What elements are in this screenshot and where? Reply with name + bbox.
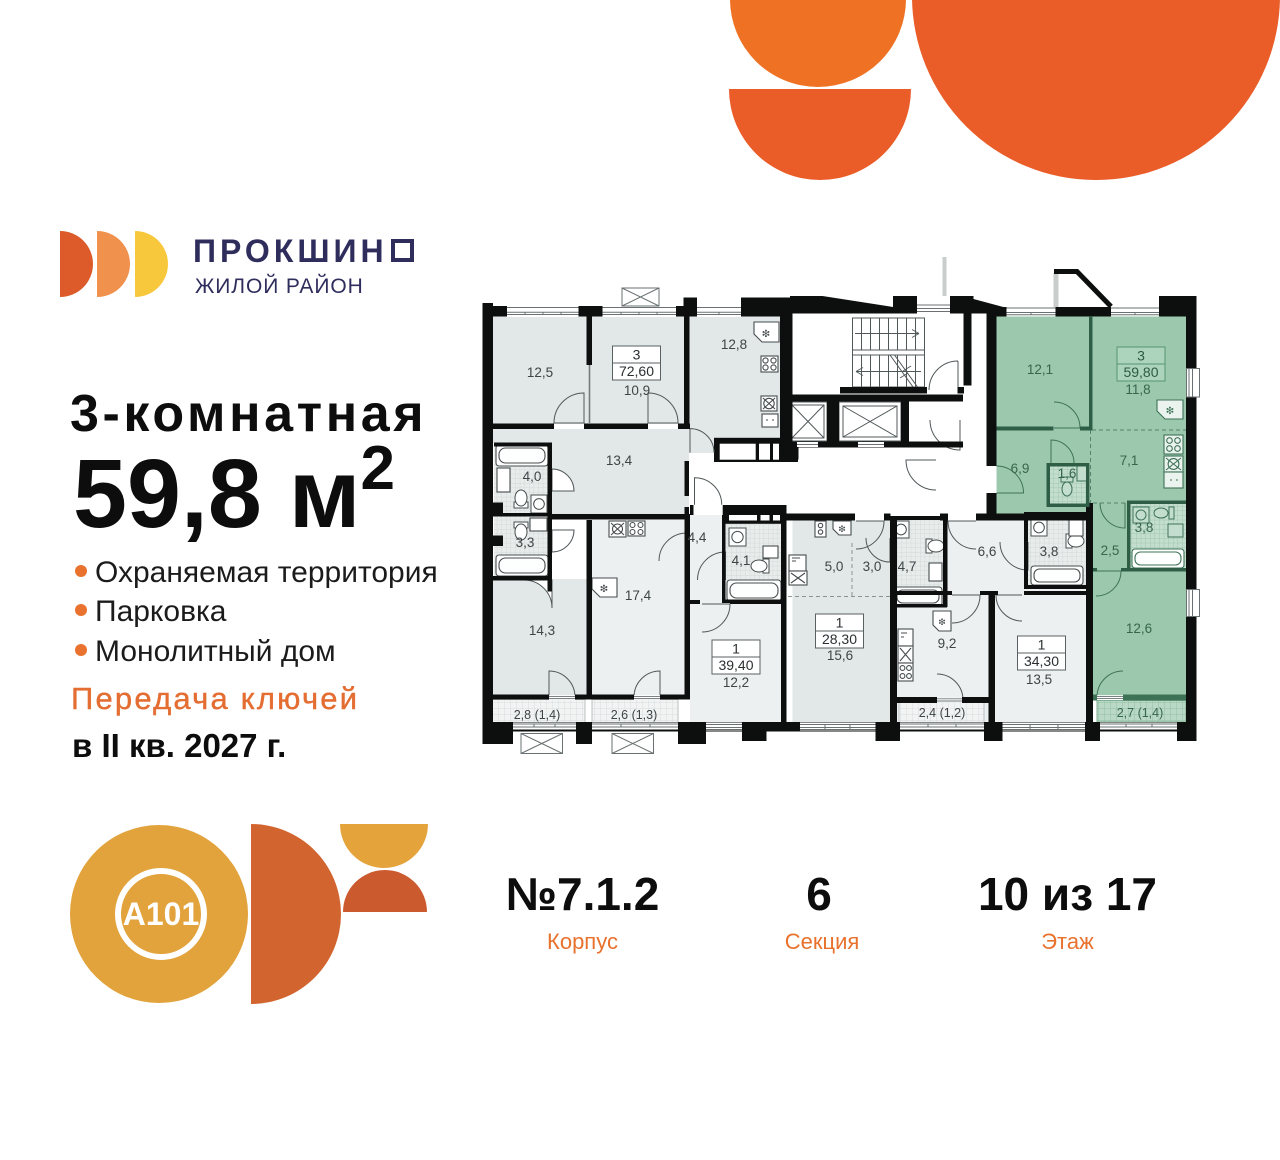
svg-text:3,8: 3,8: [1135, 520, 1154, 535]
svg-text:2,8 (1,4): 2,8 (1,4): [514, 708, 561, 722]
svg-text:1: 1: [732, 641, 740, 657]
svg-text:4,1: 4,1: [732, 553, 751, 568]
svg-text:3: 3: [1137, 348, 1145, 364]
svg-text:59,80: 59,80: [1123, 364, 1158, 380]
svg-text:1: 1: [836, 615, 844, 631]
svg-text:A101: A101: [123, 896, 200, 932]
svg-text:❇: ❇: [838, 524, 846, 534]
svg-text:13,5: 13,5: [1026, 672, 1052, 687]
svg-text:12,2: 12,2: [723, 675, 749, 690]
svg-text:2,6 (1,3): 2,6 (1,3): [611, 708, 658, 722]
svg-text:12,5: 12,5: [527, 365, 553, 380]
svg-text:11,8: 11,8: [1125, 382, 1150, 397]
svg-text:5,0: 5,0: [825, 559, 844, 574]
svg-text:12,6: 12,6: [1126, 621, 1152, 636]
svg-text:3,3: 3,3: [516, 535, 535, 550]
svg-text:15,6: 15,6: [827, 648, 853, 663]
svg-text:10,9: 10,9: [624, 383, 650, 398]
svg-text:❇: ❇: [600, 584, 608, 595]
svg-text:4,7: 4,7: [898, 559, 917, 574]
svg-text:12,8: 12,8: [721, 337, 747, 352]
svg-text:6,9: 6,9: [1011, 461, 1030, 476]
svg-text:4,0: 4,0: [523, 469, 542, 484]
svg-text:2,7 (1,4): 2,7 (1,4): [1117, 706, 1164, 720]
svg-text:❇: ❇: [1166, 406, 1174, 417]
svg-text:1: 1: [1038, 637, 1046, 653]
svg-text:1,6: 1,6: [1058, 466, 1077, 481]
svg-text:14,3: 14,3: [529, 623, 555, 638]
svg-text:72,60: 72,60: [619, 363, 654, 379]
svg-text:7,1: 7,1: [1120, 453, 1139, 468]
svg-text:17,4: 17,4: [625, 588, 652, 603]
svg-text:3: 3: [633, 347, 641, 363]
svg-text:4,4: 4,4: [688, 530, 707, 545]
svg-text:9,2: 9,2: [938, 636, 957, 651]
svg-text:39,40: 39,40: [718, 657, 753, 673]
svg-text:28,30: 28,30: [822, 631, 857, 647]
svg-text:❇: ❇: [762, 329, 770, 340]
svg-text:2,4 (1,2): 2,4 (1,2): [919, 706, 966, 720]
svg-text:34,30: 34,30: [1024, 653, 1059, 669]
svg-text:2,5: 2,5: [1101, 543, 1120, 558]
svg-text:6,6: 6,6: [978, 544, 997, 559]
svg-text:3,8: 3,8: [1040, 544, 1059, 559]
svg-text:3,0: 3,0: [863, 559, 882, 574]
svg-text:❇: ❇: [938, 617, 946, 627]
svg-text:12,1: 12,1: [1027, 362, 1053, 377]
svg-text:13,4: 13,4: [606, 453, 633, 468]
